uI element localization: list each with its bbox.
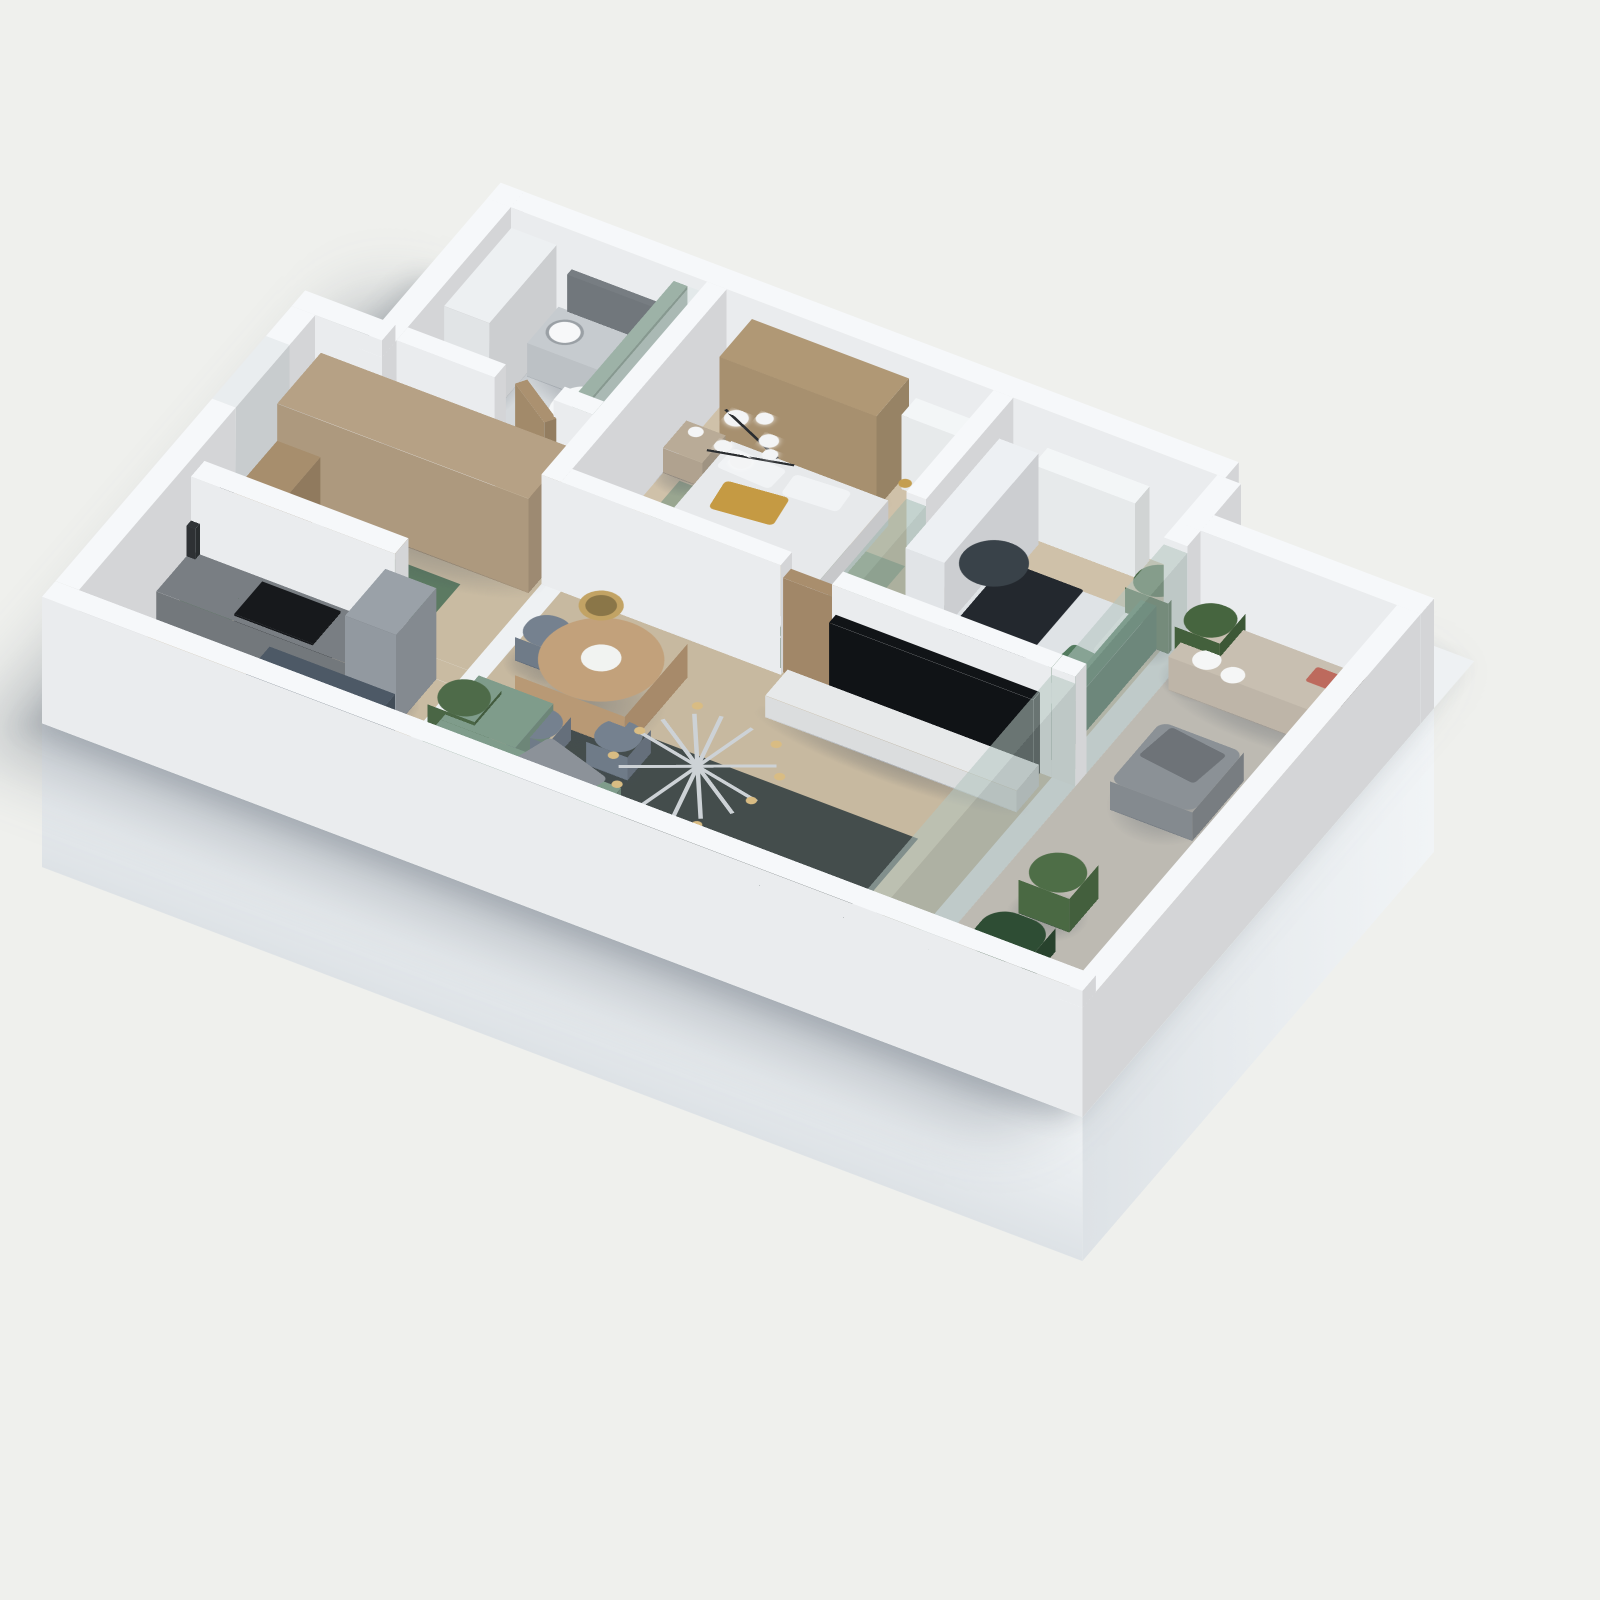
floorplan-scene [0, 0, 1600, 1600]
apartment-plan [0, 245, 1474, 1117]
wall-hall-bedroom1-south [541, 475, 561, 592]
wall-balcony-b-east [1075, 664, 1086, 787]
wall-south-east [1082, 975, 1095, 1117]
